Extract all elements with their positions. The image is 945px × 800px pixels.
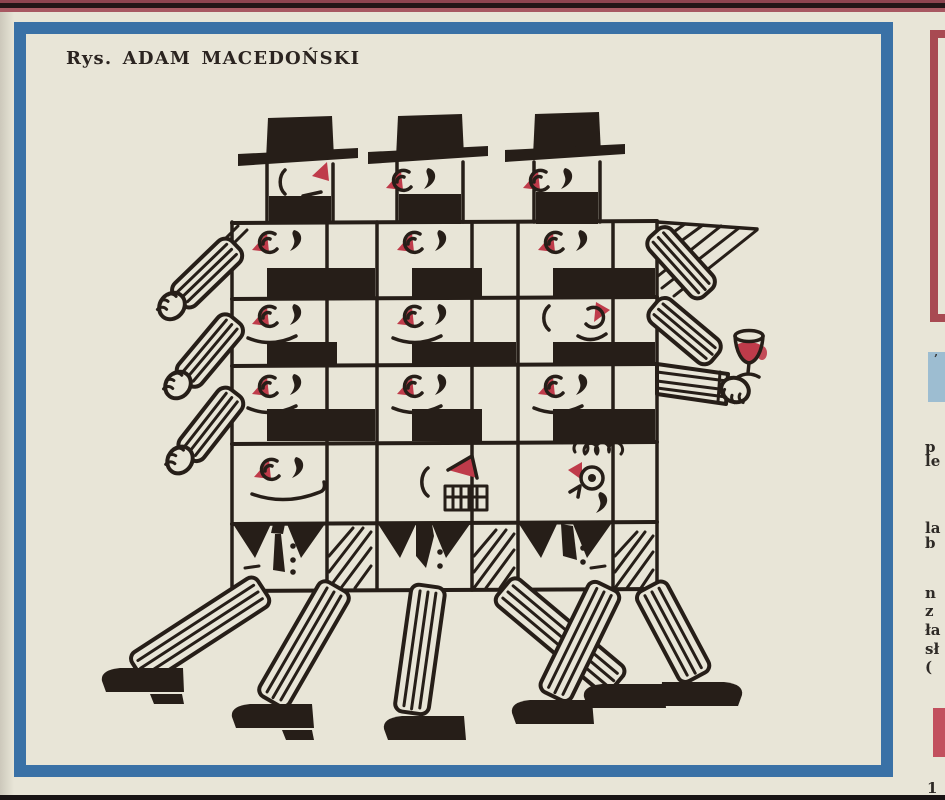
- right-column-text-fragment: z: [925, 604, 934, 619]
- right-column-text-fragment: le: [925, 454, 940, 469]
- jacket-row: [233, 524, 653, 588]
- grid-faces: [248, 230, 610, 413]
- right-column-pink-block: [933, 708, 945, 757]
- wine-glass: [735, 331, 767, 378]
- right-column-text-fragment: sł: [925, 642, 939, 657]
- right-column-text-fragment: 1: [927, 781, 937, 796]
- cartoon-illustration: [0, 0, 945, 800]
- top-heads: [238, 112, 625, 224]
- right-column-text-fragment: ’: [934, 353, 938, 364]
- bottom-edge-black-bar: [0, 795, 945, 800]
- legs: [102, 574, 742, 740]
- right-arms: [643, 222, 767, 406]
- right-column-text-fragment: n: [925, 586, 936, 601]
- right-column-red-frame: [930, 30, 945, 322]
- right-column-text-fragment: (: [925, 660, 932, 675]
- right-column-text-fragment: b: [925, 536, 936, 551]
- big-faces: [252, 441, 623, 513]
- right-column-text-fragment: ła: [925, 623, 941, 638]
- scanned-page: { "page": { "paper_color": "#e8e5d7", "t…: [0, 0, 945, 800]
